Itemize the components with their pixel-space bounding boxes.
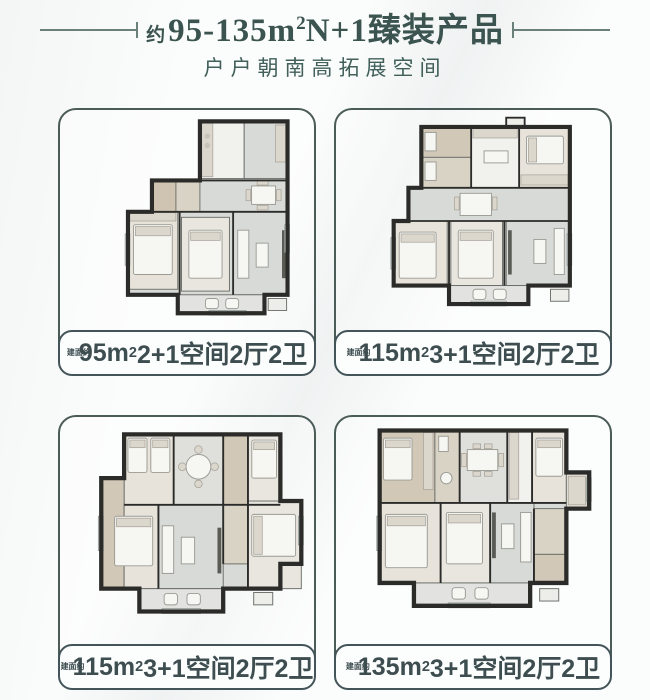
floor-plan-115a-image [342,114,604,328]
layout-text: 3+1空间2厅2卫 [430,649,600,685]
title-sup: 2 [296,13,306,34]
floor-plan-95-image [66,114,308,328]
title-text: 约95-135m2N+1臻装产品 [146,4,504,56]
title-rule-right [514,29,610,31]
page-title: 约95-135m2N+1臻装产品 [0,10,650,50]
floor-plan-135-image [342,421,604,642]
page-subtitle: 户户朝南高拓展空间 [0,52,650,82]
title-prefix: 约 [146,25,166,46]
area-value: 115m [359,339,422,368]
unit-label-115b: 建面约115m23+1空间2厅2卫 [58,644,316,690]
area-sup: 2 [135,659,143,675]
layout-text: 2+1空间2厅2卫 [137,335,307,371]
area-sup: 2 [421,345,429,361]
unit-label-95: 建面约95m22+1空间2厅2卫 [58,330,316,376]
unit-card-115b: 建面约115m23+1空间2厅2卫 [58,415,316,690]
title-main: 95-135m [168,13,296,49]
area-value: 115m [73,653,136,682]
area-sup: 2 [129,345,137,361]
unit-card-115a: 建面约115m23+1空间2厅2卫 [334,108,612,376]
area-value: 95m [79,339,129,368]
area-prefix: 建面约 [67,349,77,357]
unit-label-135: 建面约135m23+1空间2厅2卫 [334,644,612,690]
unit-card-135: 建面约135m23+1空间2厅2卫 [334,415,612,690]
floor-plan-115b-image [66,421,308,642]
layout-text: 3+1空间2厅2卫 [429,335,599,371]
title-rule-left [40,29,136,31]
title-tick-left [136,22,138,38]
title-suffix: N+1臻装产品 [306,13,504,49]
area-value: 135m [358,653,422,682]
area-prefix: 建面约 [346,663,356,671]
area-prefix: 建面约 [61,663,71,671]
unit-card-95: 建面约95m22+1空间2厅2卫 [58,108,316,376]
unit-label-115a: 建面约115m23+1空间2厅2卫 [334,330,612,376]
layout-text: 3+1空间2厅2卫 [143,649,313,685]
area-prefix: 建面约 [347,349,357,357]
area-sup: 2 [422,659,430,675]
